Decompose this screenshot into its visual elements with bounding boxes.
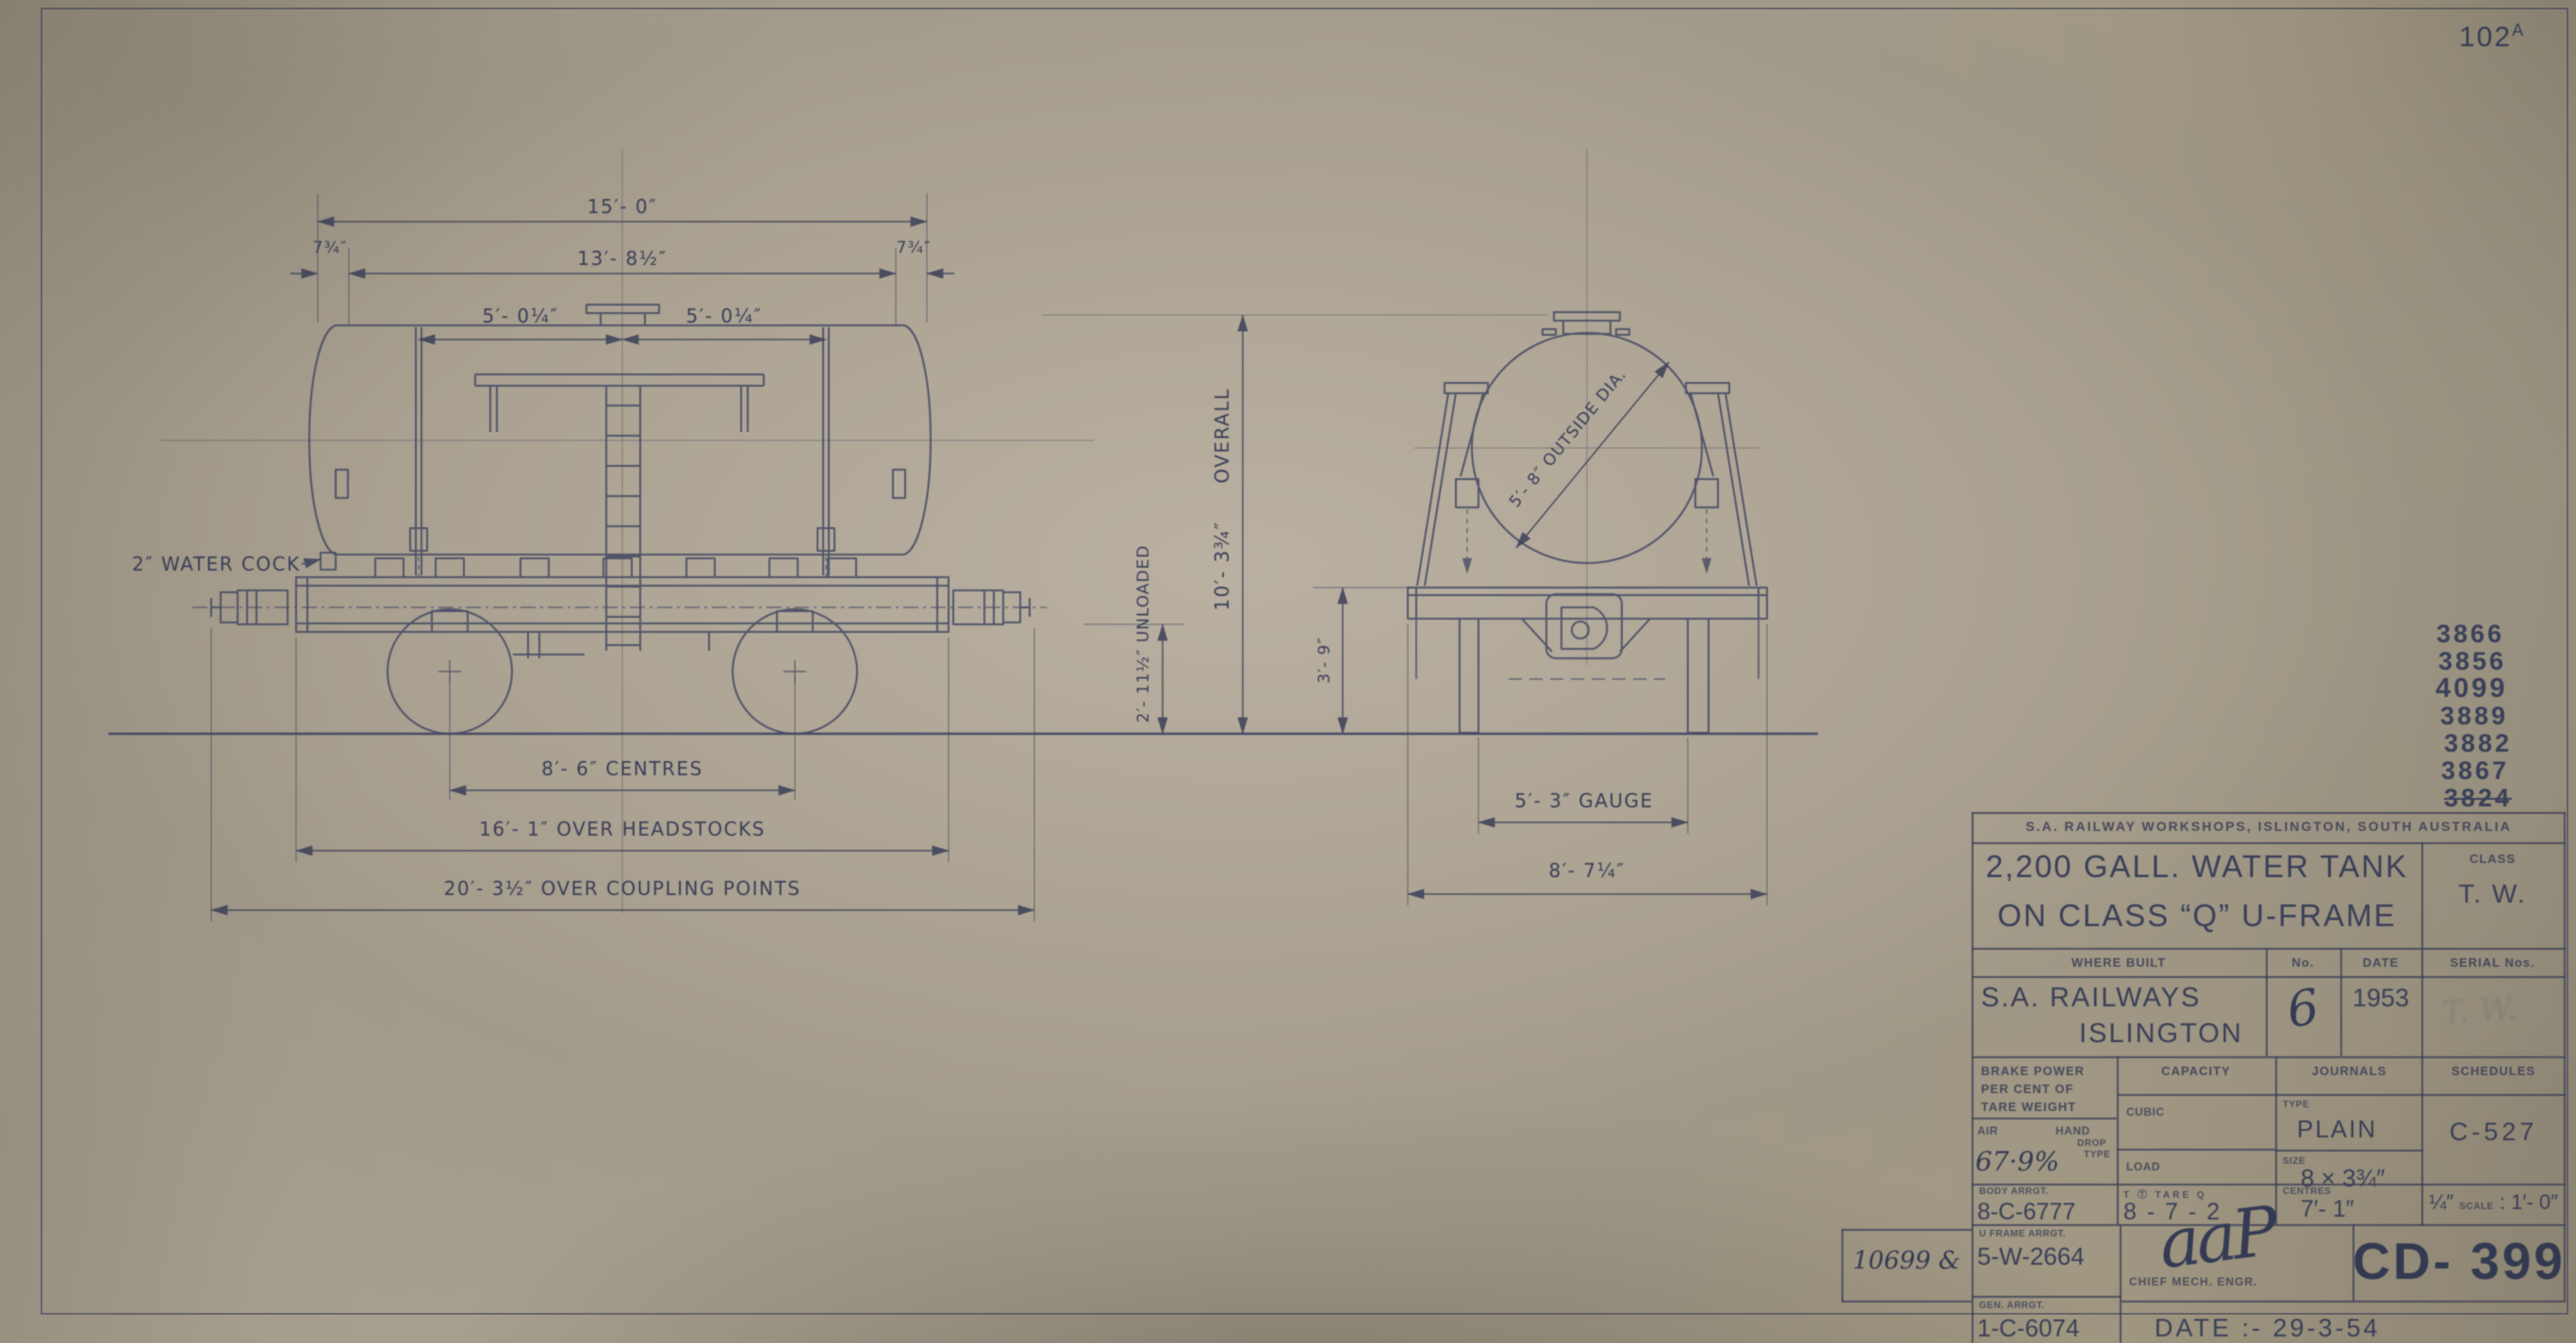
dim-unloaded: 2′- 11½″ UNLOADED xyxy=(1134,545,1153,723)
serial-number: 4099 xyxy=(2436,675,2512,703)
scale-cell: ¼″ SCALE : 1′- 0″ xyxy=(2423,1190,2564,1215)
dim-gauge: 5′- 3″ GAUGE xyxy=(1514,789,1653,812)
scale-fraction: ¼″ xyxy=(2429,1190,2453,1214)
serial-stamp-faint: T. W. xyxy=(2441,989,2518,1032)
scale-word: SCALE xyxy=(2459,1202,2493,1212)
workshop-header: S.A. RAILWAY WORKSHOPS, ISLINGTON, SOUTH… xyxy=(1972,819,2566,834)
air-label: AIR xyxy=(1977,1124,1998,1137)
order-box-line xyxy=(1841,1229,1972,1231)
dim-half-right: 5′- 0¼″ xyxy=(686,305,763,327)
tb-line xyxy=(2275,1150,2423,1152)
serial-number-struck: 3824 xyxy=(2444,785,2512,812)
brake-power-line1: BRAKE POWER xyxy=(1981,1064,2085,1078)
strap-turnbuckle-right xyxy=(817,528,834,551)
schedules-value: C-527 xyxy=(2423,1118,2564,1147)
serial-number: 3882 xyxy=(2444,730,2512,757)
journal-type-label: TYPE xyxy=(2283,1100,2309,1110)
end-legs xyxy=(1460,619,1709,733)
tb-line xyxy=(1972,1184,2566,1185)
dim-height-overall-value: 10′- 3¾″ xyxy=(1211,521,1233,610)
where-built-value-2: ISLINGTON xyxy=(2079,1019,2243,1050)
tb-line xyxy=(1972,812,2566,814)
water-cock-fitting xyxy=(321,553,336,570)
brake-power-line2: PER CENT OF xyxy=(1981,1082,2073,1096)
hand-label: HAND xyxy=(2056,1124,2090,1137)
dim-height-overall-word: OVERALL xyxy=(1211,388,1233,483)
tb-line xyxy=(1972,842,2566,844)
blueprint-sheet: 102A xyxy=(0,0,2576,1343)
tb-line xyxy=(1972,976,2566,978)
dim-over-coupling: 20′- 3½″ OVER COUPLING POINTS xyxy=(444,877,801,900)
tb-line xyxy=(2275,1056,2277,1224)
wagon-serial-numbers: 3866 3856 4099 3889 3882 3867 3824 xyxy=(2436,621,2512,812)
signature: aaP xyxy=(2155,1191,2279,1284)
cubic-label: CUBIC xyxy=(2126,1105,2165,1119)
uframe-arrgt-label: U FRAME ARRGT. xyxy=(1979,1229,2066,1239)
serial-number: 3856 xyxy=(2438,648,2512,675)
serial-number: 3889 xyxy=(2440,703,2512,730)
axlebox-right xyxy=(777,611,813,632)
body-arrgt-label: BODY ARRGT. xyxy=(1979,1186,2049,1197)
air-brake-value: 67·9% xyxy=(1975,1146,2059,1177)
axlebox-left xyxy=(432,611,468,632)
tank-chocks xyxy=(375,558,856,577)
dim-end-offset-left: 7¾″ xyxy=(313,239,348,257)
drawing-number: CD- 399 xyxy=(2353,1231,2566,1291)
tb-line xyxy=(1972,1118,2117,1119)
order-box-line xyxy=(1841,1301,1972,1302)
gen-arrgt-value: 1-C-6074 xyxy=(1977,1314,2079,1343)
tb-line xyxy=(2122,1301,2566,1302)
end-filler-cap xyxy=(1543,312,1629,335)
walkway-platform xyxy=(475,374,764,432)
where-built-value-1: S.A. RAILWAYS xyxy=(1981,983,2201,1014)
strap-turnbuckle-left xyxy=(410,528,427,551)
drawing-title-line2: ON CLASS “Q” U-FRAME xyxy=(1980,898,2414,934)
tb-line xyxy=(2120,1224,2122,1343)
serial-number: 3866 xyxy=(2436,621,2512,648)
centres-value: 7′- 1″ xyxy=(2301,1196,2354,1223)
class-label: CLASS xyxy=(2421,852,2564,866)
dim-wheel-centres: 8′- 6″ CENTRES xyxy=(541,757,702,780)
engineering-drawing: 15′- 0″ 13′- 8½″ 7¾″ 7¾″ 5′- 0¼″ 5′- 0¼″… xyxy=(0,0,2576,1343)
label-water-cock: 2″ WATER COCK xyxy=(132,553,301,575)
washout-plug-right xyxy=(893,470,905,498)
chief-mech-engr-label: CHIEF MECH. ENGR. xyxy=(2129,1275,2257,1288)
load-label: LOAD xyxy=(2126,1160,2160,1173)
dim-end-offset-right: 7¾″ xyxy=(897,239,932,257)
schedules-label: SCHEDULES xyxy=(2423,1064,2564,1078)
order-number: 10699 & xyxy=(1841,1247,1972,1275)
scale-separator: : xyxy=(2500,1190,2505,1214)
class-value: T. W. xyxy=(2421,879,2564,909)
serial-nos-label: SERIAL Nos. xyxy=(2421,955,2564,970)
ladder xyxy=(606,386,640,651)
body-arrgt-value: 8-C-6777 xyxy=(1977,1199,2075,1226)
drawing-title-line1: 2,200 GALL. WATER TANK xyxy=(1980,849,2414,885)
journal-type-value: PLAIN xyxy=(2297,1115,2377,1144)
side-view xyxy=(211,305,1030,734)
capacity-label: CAPACITY xyxy=(2117,1064,2275,1078)
dim-outside-dia: 5′- 8″ OUTSIDE DIA. xyxy=(1506,366,1630,512)
hand-type-line1: DROP xyxy=(2077,1138,2106,1149)
tb-line xyxy=(2117,1149,2275,1151)
scale-value: 1′- 0″ xyxy=(2511,1190,2558,1214)
dim-beam-height: 3′- 9″ xyxy=(1315,637,1334,683)
tb-line xyxy=(1972,1296,2122,1298)
tb-line xyxy=(1972,812,1973,1343)
hand-type-line2: TYPE xyxy=(2084,1150,2110,1160)
tb-line xyxy=(2117,1056,2119,1224)
serial-number: 3867 xyxy=(2441,757,2512,785)
dimension-labels: 15′- 0″ 13′- 8½″ 7¾″ 7¾″ 5′- 0¼″ 5′- 0¼″… xyxy=(132,195,1654,900)
gen-arrgt-label: GEN. ARRGT. xyxy=(1979,1301,2045,1311)
dim-length-overall: 15′- 0″ xyxy=(587,195,657,218)
no-label: No. xyxy=(2266,955,2340,970)
journals-label: JOURNALS xyxy=(2275,1064,2423,1078)
date-value: 1953 xyxy=(2340,984,2421,1013)
dim-half-left: 5′- 0¼″ xyxy=(483,305,559,327)
tb-line xyxy=(2117,1094,2566,1096)
date-note: DATE :- 29-3-54 xyxy=(2155,1314,2381,1343)
dim-over-width: 8′- 7¼″ xyxy=(1549,859,1626,882)
dim-length-tank: 13′- 8½″ xyxy=(577,247,667,270)
coupling-housing xyxy=(1522,594,1650,658)
no-value: 6 xyxy=(2262,976,2344,1042)
where-built-label: WHERE BUILT xyxy=(1972,955,2266,970)
washout-plug-left xyxy=(336,470,348,498)
tb-line xyxy=(1972,948,2566,950)
brake-power-line3: TARE WEIGHT xyxy=(1981,1100,2076,1114)
uframe-arrgt-value: 5-W-2664 xyxy=(1977,1242,2085,1271)
tb-line xyxy=(1972,1056,2566,1058)
date-label: DATE xyxy=(2340,955,2421,970)
tb-line xyxy=(2564,812,2566,1301)
dim-over-headstocks: 16′- 1″ OVER HEADSTOCKS xyxy=(479,818,766,840)
